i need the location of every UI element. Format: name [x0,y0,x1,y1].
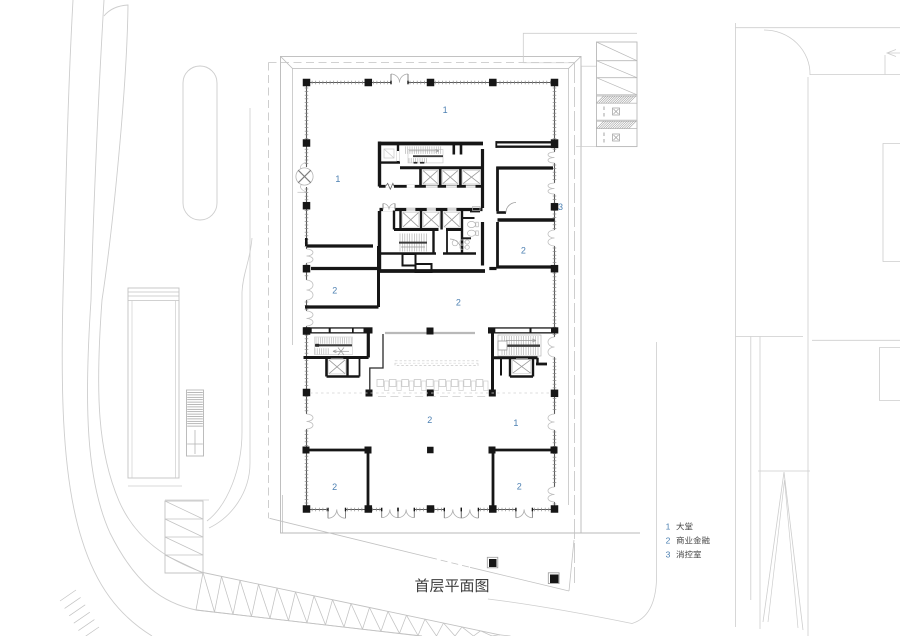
svg-text:2: 2 [666,536,671,546]
svg-text:1: 1 [443,105,448,115]
svg-text:2: 2 [521,246,526,256]
svg-text:1: 1 [513,418,518,428]
svg-text:3: 3 [666,550,671,560]
svg-text:2: 2 [427,415,432,425]
svg-text:1: 1 [666,522,671,532]
svg-text:2: 2 [517,481,522,491]
svg-text:3: 3 [558,202,563,212]
svg-text:2: 2 [332,286,337,296]
svg-text:2: 2 [456,298,461,308]
svg-text:1: 1 [335,174,340,184]
svg-text:2: 2 [332,482,337,492]
